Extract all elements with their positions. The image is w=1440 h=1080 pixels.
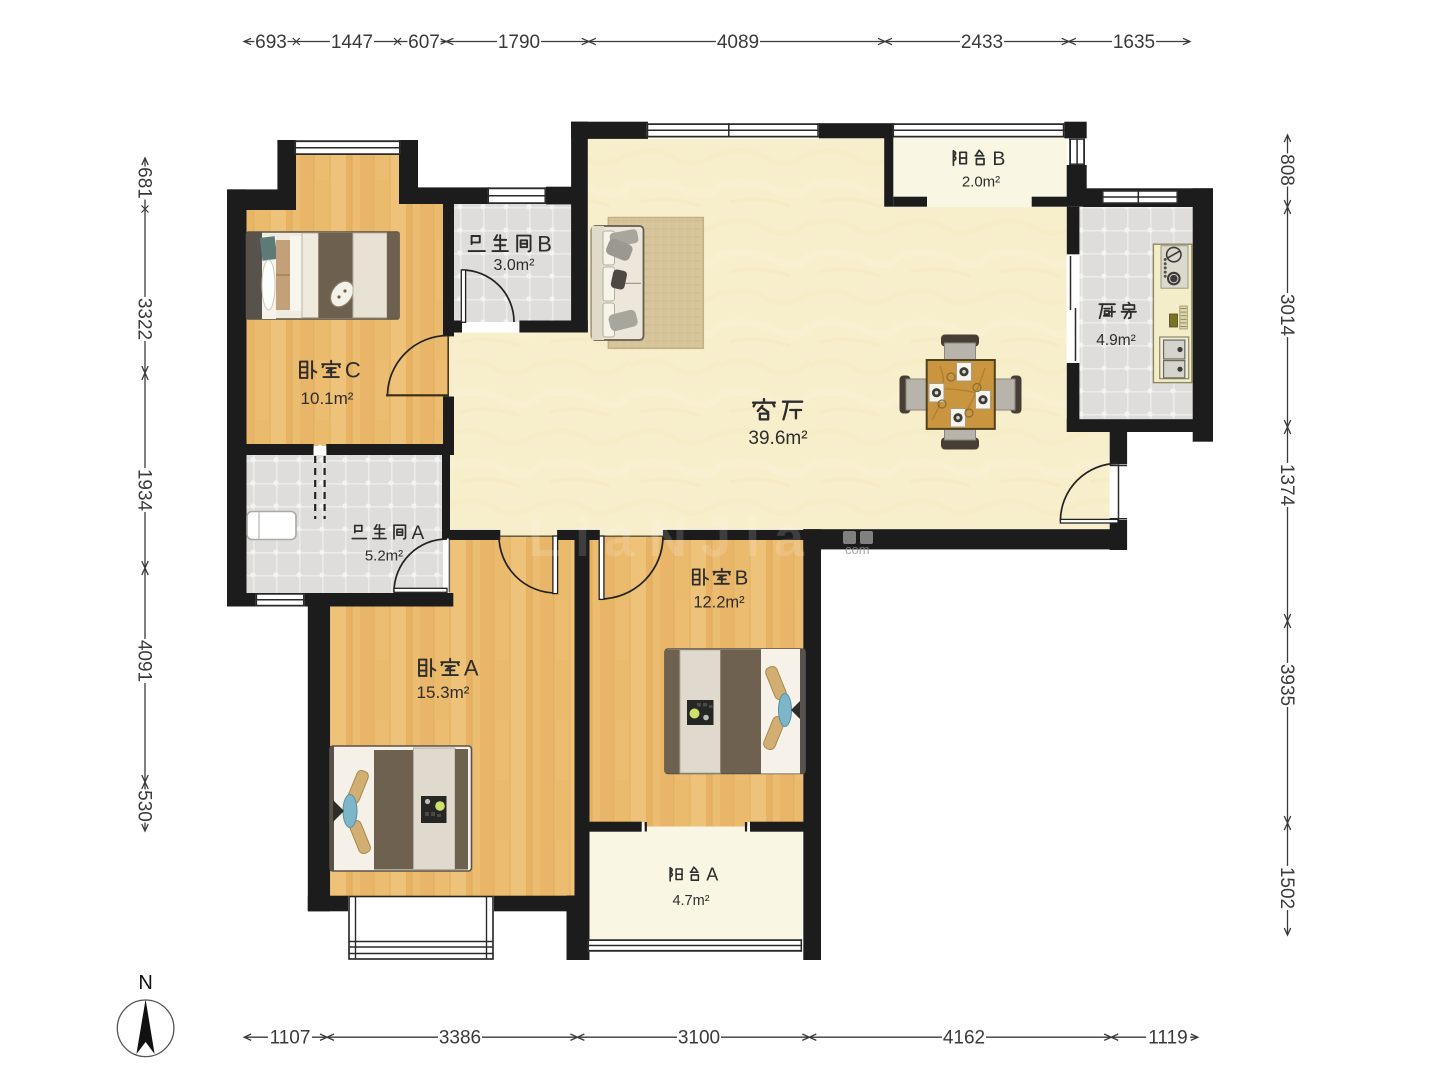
svg-text:12.2m²: 12.2m² <box>693 594 745 612</box>
svg-text:4091: 4091 <box>134 640 155 682</box>
svg-text:4.9m²: 4.9m² <box>1096 332 1136 349</box>
svg-text:681: 681 <box>134 167 155 199</box>
svg-text:1934: 1934 <box>134 469 155 512</box>
svg-text:10.1m²: 10.1m² <box>301 389 354 408</box>
svg-text:808: 808 <box>1276 154 1297 186</box>
svg-text:693: 693 <box>255 32 287 53</box>
svg-text:3.0m²: 3.0m² <box>494 257 536 274</box>
svg-text:B: B <box>537 232 552 257</box>
svg-text:1447: 1447 <box>331 32 373 53</box>
svg-text:1502: 1502 <box>1276 867 1297 909</box>
svg-text:607: 607 <box>408 32 440 53</box>
svg-text:3935: 3935 <box>1276 664 1297 706</box>
svg-text:1635: 1635 <box>1113 32 1155 53</box>
svg-text:1374: 1374 <box>1276 464 1297 507</box>
svg-text:3014: 3014 <box>1276 294 1297 337</box>
svg-text:A: A <box>464 656 479 681</box>
svg-text:3322: 3322 <box>134 298 155 340</box>
svg-text:5.2m²: 5.2m² <box>365 548 403 565</box>
svg-text:15.3m²: 15.3m² <box>417 683 470 702</box>
svg-text:530: 530 <box>134 790 155 822</box>
svg-text:N: N <box>138 972 152 994</box>
svg-text:B: B <box>992 148 1005 170</box>
svg-text:4162: 4162 <box>943 1028 985 1049</box>
svg-text:2433: 2433 <box>961 32 1003 53</box>
svg-text:C: C <box>345 358 361 383</box>
svg-text:2.0m²: 2.0m² <box>962 174 1000 191</box>
svg-text:com: com <box>845 542 870 557</box>
svg-text:B: B <box>735 567 749 590</box>
svg-text:LiaNJia: LiaNJia <box>528 508 818 568</box>
svg-text:A: A <box>706 865 718 885</box>
svg-text:3386: 3386 <box>439 1028 481 1049</box>
svg-text:A: A <box>412 523 425 544</box>
svg-text:3100: 3100 <box>678 1028 720 1049</box>
svg-text:1790: 1790 <box>498 32 540 53</box>
svg-text:1107: 1107 <box>270 1028 311 1049</box>
svg-text:39.6m²: 39.6m² <box>748 428 807 449</box>
svg-text:1119: 1119 <box>1148 1028 1187 1049</box>
svg-text:4.7m²: 4.7m² <box>672 893 709 909</box>
svg-text:4089: 4089 <box>717 32 759 53</box>
